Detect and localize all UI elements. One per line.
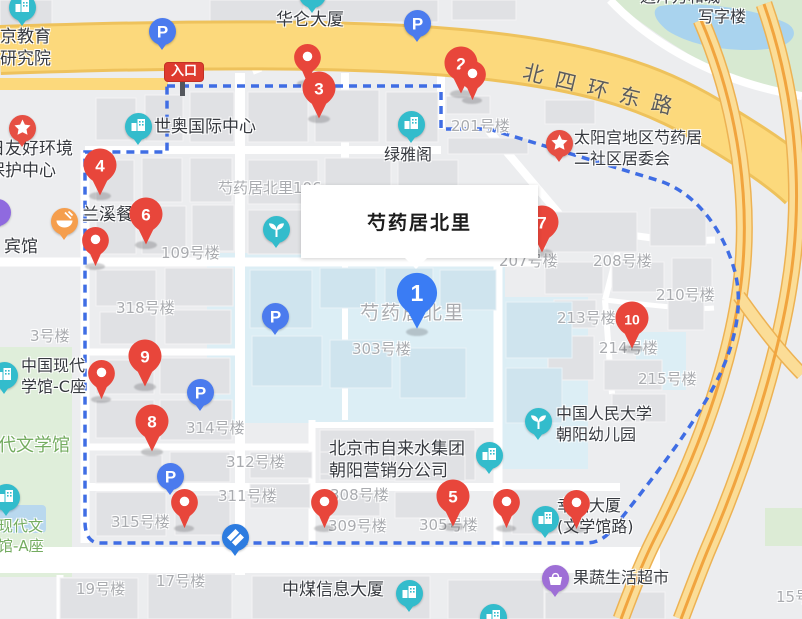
poi-label: 世奥国际中心 bbox=[154, 116, 256, 138]
building-label: 15号 bbox=[776, 588, 802, 608]
svg-text:P: P bbox=[269, 307, 280, 326]
bank-icon[interactable] bbox=[222, 524, 249, 551]
building-label: 3号楼 bbox=[30, 327, 70, 347]
building-label: 17号楼 bbox=[156, 572, 205, 592]
building-label: 213号楼 bbox=[557, 309, 616, 329]
parking-icon[interactable]: P bbox=[262, 303, 289, 330]
poi-label: 中国现代学馆-C座 bbox=[21, 356, 86, 398]
poi-label: 北京市自来水集团朝阳营销分公司 bbox=[329, 438, 465, 482]
map-canvas[interactable]: 入口 北四环东路 芍药居北里106201号楼109号楼207号楼208号楼210… bbox=[0, 0, 802, 619]
plant-icon[interactable] bbox=[263, 216, 290, 243]
building-icon[interactable] bbox=[398, 111, 425, 138]
building-icon[interactable] bbox=[0, 484, 20, 511]
svg-text:7: 7 bbox=[537, 214, 546, 233]
svg-text:P: P bbox=[194, 383, 205, 402]
svg-text:9: 9 bbox=[140, 348, 149, 367]
location-pin[interactable] bbox=[458, 60, 487, 106]
shop-icon[interactable] bbox=[542, 565, 569, 592]
building-icon[interactable] bbox=[299, 0, 326, 8]
building-icon[interactable] bbox=[476, 442, 503, 469]
area-label: 现代文馆-A座 bbox=[0, 517, 44, 556]
building-label: 312号楼 bbox=[226, 453, 285, 473]
building-label: 318号楼 bbox=[116, 299, 175, 319]
marker-3[interactable]: 3 bbox=[301, 70, 337, 124]
poi-label: 中国人民大学朝阳幼儿园 bbox=[556, 404, 652, 446]
svg-text:1: 1 bbox=[411, 280, 424, 306]
info-window-arrow bbox=[405, 258, 427, 269]
parking-icon[interactable]: P bbox=[187, 379, 214, 406]
building-label: 208号楼 bbox=[593, 252, 652, 272]
info-window[interactable]: 芍药居北里 bbox=[301, 185, 538, 258]
info-window-title: 芍药居北里 bbox=[367, 208, 472, 235]
svg-text:3: 3 bbox=[314, 80, 323, 99]
poi-label: 日友好环境保护中心 bbox=[0, 138, 73, 182]
svg-text:10: 10 bbox=[624, 312, 640, 328]
entrance-sign: 入口 bbox=[164, 62, 204, 82]
building-icon[interactable] bbox=[9, 0, 36, 21]
circle-icon[interactable] bbox=[0, 199, 11, 226]
building-icon[interactable] bbox=[396, 580, 423, 607]
marker-6[interactable]: 6 bbox=[128, 196, 164, 250]
poi-label: 北京教育学研究院 bbox=[0, 26, 51, 70]
svg-text:4: 4 bbox=[95, 157, 105, 176]
poi-label: 果蔬生活超市 bbox=[573, 568, 669, 589]
svg-text:P: P bbox=[411, 14, 422, 33]
entrance-sign-pole bbox=[180, 80, 185, 96]
building-label: 201号楼 bbox=[451, 117, 510, 137]
svg-text:P: P bbox=[164, 467, 175, 486]
svg-text:P: P bbox=[156, 22, 167, 41]
plant-icon[interactable] bbox=[525, 408, 552, 435]
area-label: 代文学馆 bbox=[0, 434, 70, 457]
building-label: 303号楼 bbox=[352, 340, 411, 360]
svg-text:6: 6 bbox=[141, 206, 150, 225]
star-icon[interactable] bbox=[9, 115, 36, 142]
star-icon[interactable] bbox=[546, 130, 573, 157]
poi-label: 太阳宫地区芍药居二社区居委会 bbox=[574, 128, 702, 170]
building-icon[interactable] bbox=[125, 113, 152, 140]
building-label: 314号楼 bbox=[186, 419, 245, 439]
building-label: 210号楼 bbox=[656, 286, 715, 306]
location-pin[interactable] bbox=[310, 488, 339, 534]
parking-icon[interactable]: P bbox=[404, 10, 431, 37]
svg-text:5: 5 bbox=[448, 488, 457, 507]
marker-8[interactable]: 8 bbox=[134, 403, 170, 457]
building-icon[interactable] bbox=[532, 506, 559, 533]
building-label: 19号楼 bbox=[76, 580, 125, 600]
marker-9[interactable]: 9 bbox=[127, 338, 163, 392]
marker-5[interactable]: 5 bbox=[435, 478, 471, 532]
poi-label: 写字楼 bbox=[698, 7, 746, 28]
marker-4[interactable]: 4 bbox=[82, 147, 118, 201]
building-label: 308号楼 bbox=[330, 486, 389, 506]
food-icon[interactable] bbox=[51, 208, 78, 235]
parking-icon[interactable]: P bbox=[157, 463, 184, 490]
building-label: 215号楼 bbox=[638, 370, 697, 390]
building-icon[interactable] bbox=[0, 362, 18, 389]
marker-10[interactable]: 10 bbox=[614, 300, 650, 354]
building-label: 109号楼 bbox=[161, 244, 220, 264]
location-pin[interactable] bbox=[492, 488, 521, 534]
building-label: 315号楼 bbox=[111, 513, 170, 533]
poi-label: 中煤信息大厦 bbox=[282, 579, 384, 601]
location-pin[interactable] bbox=[81, 226, 110, 272]
location-pin[interactable] bbox=[562, 489, 591, 535]
poi-label: 绿雅阁 bbox=[384, 145, 432, 166]
poi-label: 宾馆 bbox=[4, 236, 38, 258]
svg-text:8: 8 bbox=[147, 413, 156, 432]
parking-icon[interactable]: P bbox=[149, 18, 176, 45]
building-label: 311号楼 bbox=[218, 487, 277, 507]
location-pin[interactable] bbox=[170, 488, 199, 534]
building-icon[interactable] bbox=[480, 604, 507, 619]
location-pin[interactable] bbox=[87, 359, 116, 405]
marker-1[interactable]: 1 bbox=[395, 271, 439, 334]
